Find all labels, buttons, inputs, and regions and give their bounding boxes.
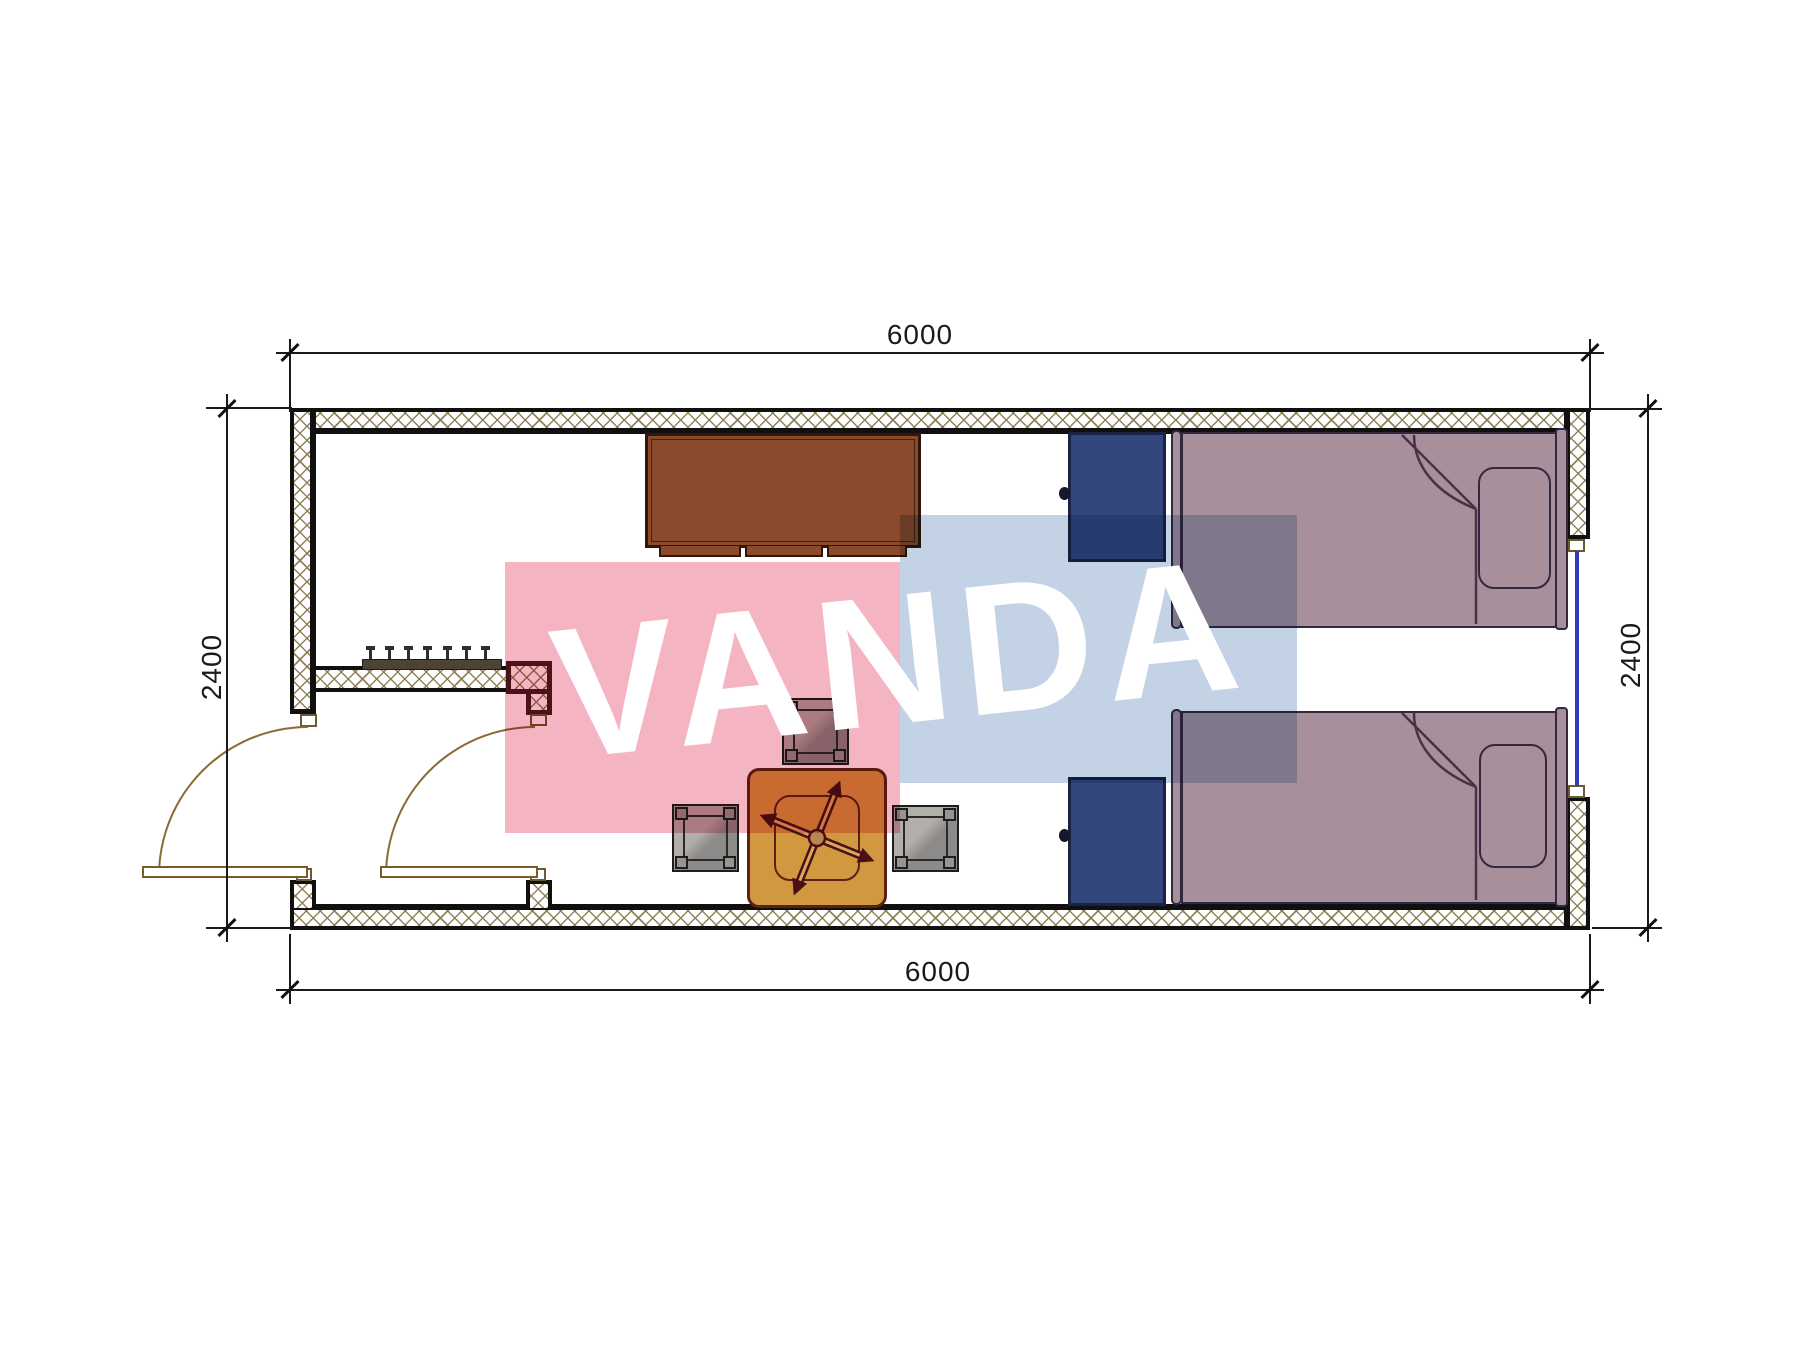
sideboard-cabinet-top <box>651 439 915 542</box>
coat-rack-hook <box>481 646 490 659</box>
stool-leg <box>943 808 956 821</box>
floor-plan-canvas: VANDA 6000 6000 2400 2400 <box>0 0 1800 1350</box>
jamb-window-bottom <box>1568 785 1585 798</box>
sideboard-cabinet <box>645 433 921 548</box>
wall-top <box>290 408 1590 434</box>
coat-rack-hook <box>423 646 432 659</box>
extension-line <box>206 927 292 929</box>
bed-top-pillow <box>1478 467 1551 589</box>
stool-leg <box>675 856 688 869</box>
wall-left <box>290 408 316 714</box>
interior-door-leaf <box>380 866 538 878</box>
nightstand-knob <box>1059 829 1070 842</box>
dimension-value-bottom: 6000 <box>878 957 998 987</box>
dimension-line-right <box>1647 394 1649 942</box>
dimension-value-right: 2400 <box>1616 595 1646 715</box>
dimension-value-top: 6000 <box>860 320 980 350</box>
cabinet-drawer <box>659 546 741 557</box>
stool-leg <box>723 856 736 869</box>
wall-bottom <box>290 904 1590 930</box>
coat-rack-hook <box>462 646 471 659</box>
coat-rack-bar <box>362 659 502 670</box>
dimension-line-bottom <box>276 989 1604 991</box>
bed-bottom-headboard <box>1555 707 1568 907</box>
bed-top-headboard <box>1555 428 1568 630</box>
stool-leg <box>943 856 956 869</box>
entry-door-swing-arc <box>158 726 308 876</box>
stool-leg <box>895 856 908 869</box>
extension-line <box>1588 408 1662 410</box>
entry-door-leaf <box>142 866 308 878</box>
coat-rack-hook <box>443 646 452 659</box>
extension-line <box>1592 927 1662 929</box>
bed-bottom-pillow <box>1479 744 1547 868</box>
dimension-value-left: 2400 <box>197 607 227 727</box>
extension-line <box>206 407 292 409</box>
extension-line <box>289 934 291 1004</box>
coat-rack-hook <box>404 646 413 659</box>
jamb-entry-top <box>300 714 317 727</box>
dimension-line-top <box>276 352 1604 354</box>
stool-right <box>892 805 959 872</box>
door-jamb-post-left <box>290 880 316 908</box>
nightstand-knob <box>1059 487 1070 500</box>
window-glass-line <box>1575 551 1579 786</box>
extension-line <box>1589 934 1591 1004</box>
coat-rack-hook <box>385 646 394 659</box>
nightstand-bottom <box>1068 777 1166 906</box>
coat-rack-hook <box>366 646 375 659</box>
door-jamb-post-right <box>526 880 552 908</box>
cabinet-drawer <box>745 546 823 557</box>
stool-seat <box>903 816 948 861</box>
